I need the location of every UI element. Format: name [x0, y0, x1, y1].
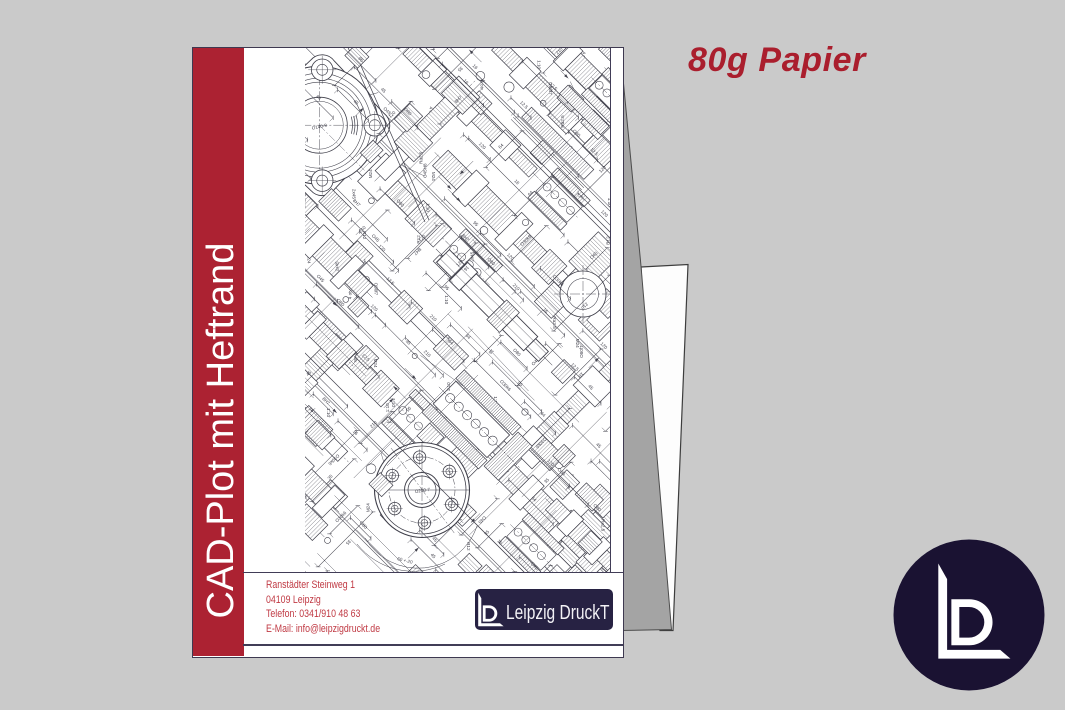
- svg-text:64: 64: [464, 332, 471, 339]
- svg-text:45: 45: [380, 86, 387, 93]
- svg-text:12.5: 12.5: [519, 99, 529, 109]
- svg-text:8H7: 8H7: [352, 198, 362, 208]
- svg-text:210: 210: [369, 419, 378, 428]
- svg-text:120: 120: [377, 243, 386, 252]
- svg-text:O80: O80: [359, 520, 369, 530]
- svg-text:Ra2.5: Ra2.5: [560, 114, 565, 127]
- svg-text:2x45: 2x45: [469, 251, 474, 261]
- svg-text:O45: O45: [371, 233, 381, 243]
- svg-text:2x45: 2x45: [351, 188, 356, 198]
- svg-text:95: 95: [472, 220, 479, 227]
- svg-text:O45H8: O45H8: [422, 163, 427, 178]
- svg-text:1:10: 1:10: [446, 381, 451, 390]
- svg-text:35: 35: [456, 65, 463, 72]
- svg-text:Ra2.5: Ra2.5: [419, 151, 424, 164]
- svg-text:95: 95: [405, 338, 412, 345]
- svg-text:M24: M24: [365, 502, 370, 511]
- svg-text:210: 210: [512, 282, 521, 291]
- svg-text:210: 210: [423, 349, 432, 358]
- svg-text:M24: M24: [431, 171, 436, 180]
- svg-text:210: 210: [429, 313, 438, 322]
- svg-text:120: 120: [600, 209, 609, 218]
- svg-text:O30k6: O30k6: [499, 378, 512, 391]
- svg-text:1:10: 1:10: [426, 202, 431, 211]
- svg-text:120: 120: [598, 164, 607, 173]
- svg-text:CAD-Plot mit Heftrand: CAD-Plot mit Heftrand: [200, 242, 242, 618]
- svg-text:95: 95: [516, 380, 523, 387]
- svg-text:O30k6: O30k6: [334, 509, 347, 522]
- svg-text:120: 120: [506, 252, 515, 261]
- svg-text:R12: R12: [466, 542, 471, 551]
- svg-text:O45: O45: [477, 515, 487, 525]
- svg-text:64: 64: [539, 410, 546, 417]
- svg-text:4 otv.: 4 otv.: [348, 288, 353, 299]
- svg-text:1:10: 1:10: [536, 60, 541, 69]
- svg-text:2x45: 2x45: [334, 261, 339, 271]
- svg-text:120: 120: [478, 141, 487, 150]
- svg-text:35: 35: [483, 528, 490, 535]
- svg-text:35: 35: [543, 476, 550, 483]
- svg-text:O80f7: O80f7: [579, 344, 584, 357]
- svg-text:35: 35: [327, 473, 334, 480]
- svg-text:O80f7: O80f7: [374, 282, 379, 295]
- svg-text:1:10: 1:10: [444, 295, 449, 304]
- svg-text:16: 16: [513, 178, 520, 185]
- svg-text:M24: M24: [373, 358, 378, 367]
- svg-text:120: 120: [370, 303, 379, 312]
- svg-text:O45H8: O45H8: [305, 193, 306, 208]
- svg-text:45: 45: [595, 441, 602, 448]
- svg-text:16: 16: [471, 63, 478, 70]
- svg-text:45: 45: [430, 552, 437, 559]
- svg-text:O80: O80: [512, 347, 522, 357]
- svg-text:8H7: 8H7: [321, 396, 331, 406]
- svg-text:M24: M24: [368, 168, 373, 177]
